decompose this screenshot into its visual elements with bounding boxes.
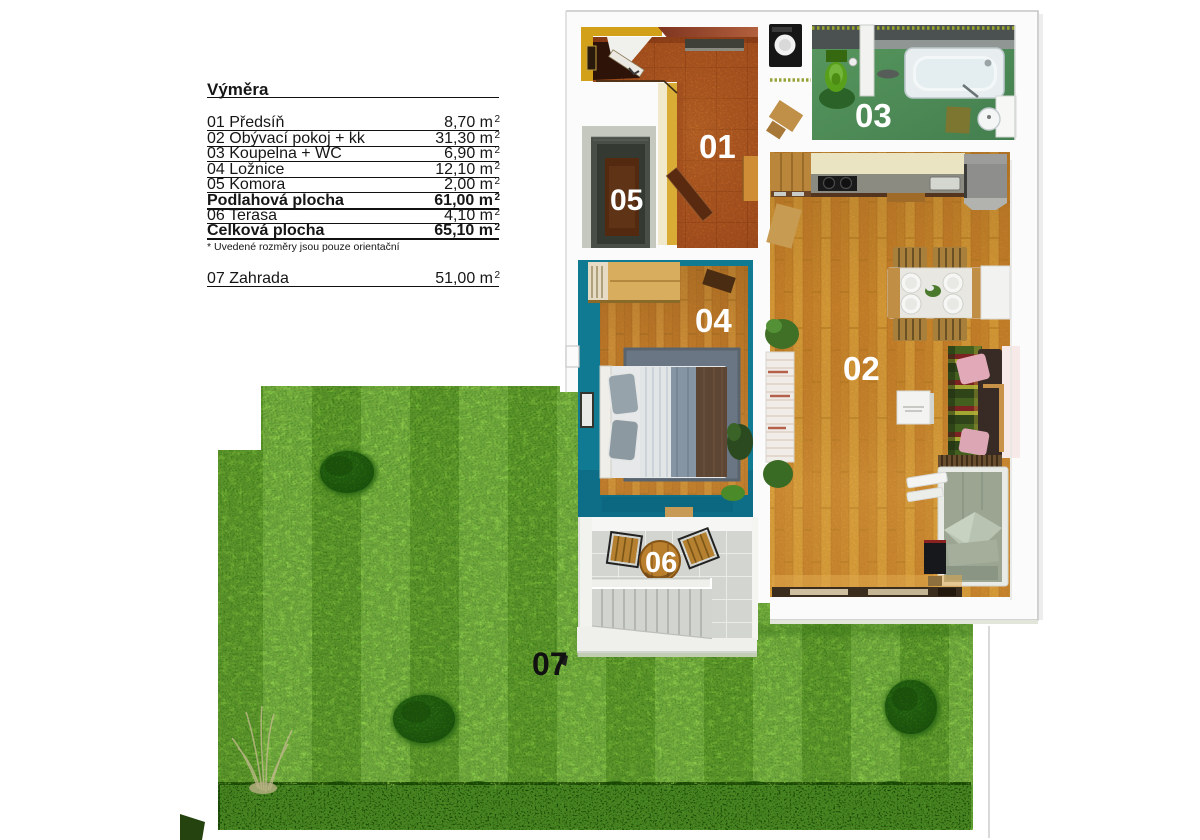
svg-text:03: 03 xyxy=(855,97,892,134)
svg-text:02: 02 xyxy=(843,350,880,387)
svg-text:05: 05 xyxy=(610,184,643,217)
svg-text:06: 06 xyxy=(645,547,677,579)
svg-text:04: 04 xyxy=(695,302,732,339)
svg-text:01: 01 xyxy=(699,128,736,165)
svg-text:07: 07 xyxy=(532,646,568,682)
